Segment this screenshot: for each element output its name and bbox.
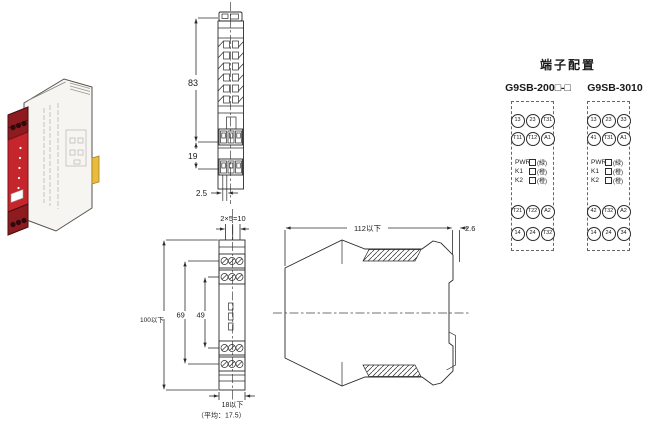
terminal-block-g9sb-3010: 13 23 33 41 T31 A1 PWR (緑) K1 (橙) K2 (橙) <box>587 101 630 251</box>
terminal: A2 <box>617 205 631 219</box>
indicator-row-k1: K1 (橙) <box>588 167 629 176</box>
terminal: 13 <box>587 114 601 128</box>
indicator-row-k2: K2 (橙) <box>512 176 553 185</box>
terminal: A1 <box>541 132 555 146</box>
plan-view-drawing: 2×5=10 100以下 69 49 18以下 （平均：17.5） <box>140 207 280 422</box>
terminal-row: 13 23 T31 <box>512 114 553 128</box>
dim-49: 49 <box>197 311 205 320</box>
terminal-row: T21 T22 A2 <box>512 205 553 219</box>
terminal-config-heading: 端子配置 <box>498 56 638 73</box>
indicator-row-pwr: PWR (緑) <box>588 158 629 167</box>
side-profile-drawing: 112以下 2.6 <box>272 212 480 407</box>
terminal-row: 42 T32 A2 <box>588 205 629 219</box>
terminal: 34 <box>617 227 631 241</box>
led-square-icon <box>529 177 536 184</box>
terminal: 41 <box>587 132 601 146</box>
terminal: A1 <box>617 132 631 146</box>
terminal: 24 <box>526 227 540 241</box>
din-latch <box>447 332 456 370</box>
plan-view-body <box>219 240 245 390</box>
dim-112: 112以下 <box>354 224 381 233</box>
terminal-block-g9sb-200: 13 23 T31 T11 T12 A1 PWR (緑) K1 (橙) K2 ( <box>511 101 554 251</box>
model-name-g9sb-200: G9SB-200□-□ <box>494 82 582 94</box>
dim-100: 100以下 <box>140 316 164 324</box>
terminal: 14 <box>511 227 525 241</box>
product-photo <box>4 68 122 243</box>
dim-2-5: 2.5 <box>196 189 208 198</box>
dim-19: 19 <box>188 151 198 161</box>
terminal: T32 <box>602 205 616 219</box>
terminal-row: 13 23 33 <box>588 114 629 128</box>
led-square-icon <box>529 168 536 175</box>
terminal: T21 <box>511 205 525 219</box>
dim-69: 69 <box>177 311 185 320</box>
terminal: 33 <box>617 114 631 128</box>
indicator-row-k1: K1 (橙) <box>512 167 553 176</box>
terminal: 42 <box>587 205 601 219</box>
front-view-drawing: 83 19 2.5 <box>185 2 303 208</box>
terminal: 13 <box>511 114 525 128</box>
datasheet-dimensions-page: 83 19 2.5 <box>0 0 648 422</box>
terminal: T31 <box>602 132 616 146</box>
dim-2-6: 2.6 <box>465 224 475 233</box>
terminal-row: 14 24 34 <box>588 227 629 241</box>
dim-18: 18以下 <box>222 401 244 409</box>
terminal-row: 14 24 T32 <box>512 227 553 241</box>
led-square-icon <box>605 168 612 175</box>
plan-view-dimensions: 2×5=10 100以下 69 49 18以下 （平均：17.5） <box>140 214 255 420</box>
terminal: A2 <box>541 205 555 219</box>
led-square-icon <box>605 159 612 166</box>
din-clip-yellow <box>92 156 99 184</box>
terminal-row: T11 T12 A1 <box>512 132 553 146</box>
relay-housing <box>24 79 92 231</box>
grip-hatch-bottom <box>363 365 421 377</box>
terminal: T11 <box>511 132 525 146</box>
grip-hatch-top <box>363 250 421 262</box>
terminal: T12 <box>526 132 540 146</box>
terminal: 24 <box>602 227 616 241</box>
dim-83: 83 <box>188 78 198 88</box>
dim-avg: （平均：17.5） <box>197 411 246 420</box>
led-square-icon <box>529 159 536 166</box>
indicator-legend: PWR (緑) K1 (橙) K2 (橙) <box>512 158 553 185</box>
terminal: T22 <box>526 205 540 219</box>
terminal-row: 41 T31 A1 <box>588 132 629 146</box>
terminal: T32 <box>541 227 555 241</box>
terminal: 14 <box>587 227 601 241</box>
dim-holes: 2×5=10 <box>220 214 245 223</box>
model-name-g9sb-3010: G9SB-3010 <box>583 82 647 94</box>
indicator-row-pwr: PWR (緑) <box>512 158 553 167</box>
indicator-legend: PWR (緑) K1 (橙) K2 (橙) <box>588 158 629 185</box>
terminal: 23 <box>602 114 616 128</box>
front-face <box>8 107 28 235</box>
terminal: 23 <box>526 114 540 128</box>
led-square-icon <box>605 177 612 184</box>
terminal: T31 <box>541 114 555 128</box>
indicator-row-k2: K2 (橙) <box>588 176 629 185</box>
